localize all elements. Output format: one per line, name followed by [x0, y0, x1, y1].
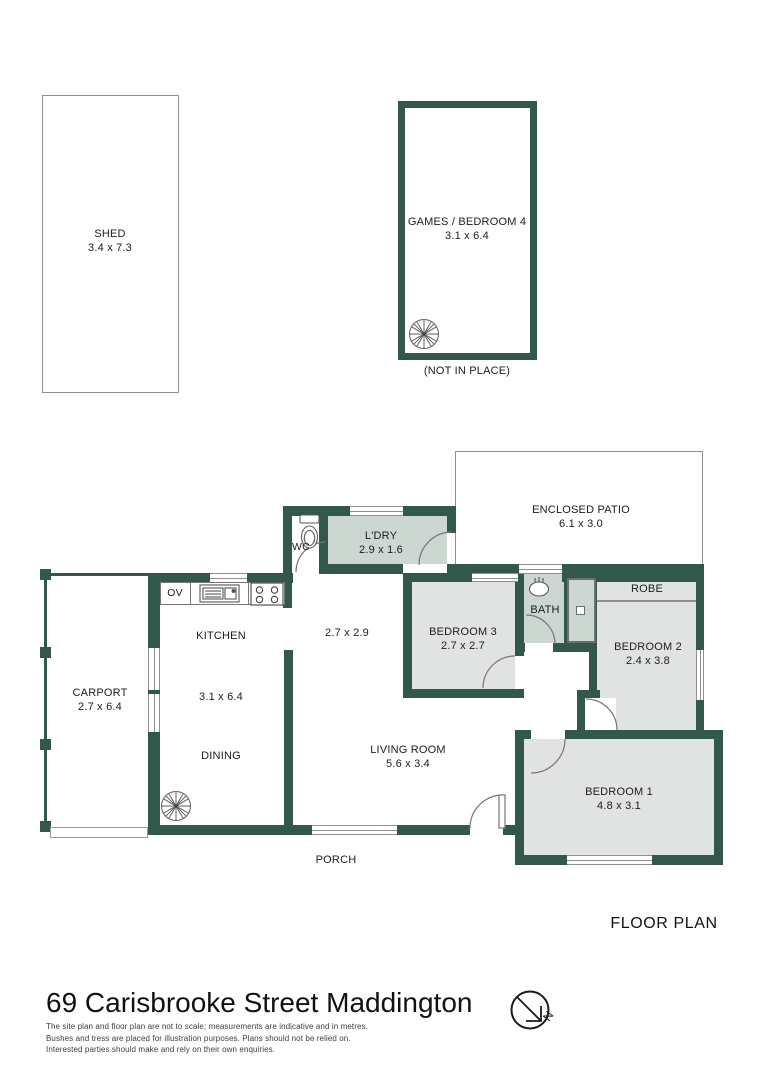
wc-label: WC [292, 541, 310, 553]
hall-dims: 2.7 x 2.9 [325, 627, 369, 640]
robe-label: ROBE [631, 583, 663, 596]
window [567, 855, 652, 865]
wall [515, 643, 525, 652]
ceiling-fan-icon [162, 792, 191, 821]
robe-divider [597, 600, 696, 602]
shed-label: SHED [94, 228, 125, 241]
wall [696, 573, 704, 650]
front-door-arc [470, 795, 503, 828]
laundry-label: L'DRY [365, 530, 397, 543]
wall [515, 730, 524, 865]
wall [44, 573, 47, 828]
floor-plan-title: FLOOR PLAN [610, 915, 717, 933]
bedroom2-door-swing-area [584, 698, 616, 730]
living-room-label: LIVING ROOM [370, 744, 446, 757]
compass-n-label: N [540, 1009, 556, 1024]
bedroom3-label: BEDROOM 3 [429, 626, 497, 639]
games-room-dims: 3.1 x 6.4 [445, 230, 489, 243]
bench-divider [190, 582, 191, 605]
bath-label: BATH [530, 604, 559, 617]
carport-post [40, 569, 51, 580]
patio-dims: 6.1 x 3.0 [559, 518, 603, 531]
games-room-note: (NOT IN PLACE) [424, 365, 510, 378]
wall [403, 573, 412, 698]
kitchen-label: KITCHEN [196, 630, 246, 643]
window [312, 825, 397, 835]
floor-plan-page: N SHED 3.4 x 7.3 GAMES / BEDROOM 4 3.1 x… [0, 0, 764, 1080]
bedroom1-label: BEDROOM 1 [585, 786, 653, 799]
wall [44, 573, 148, 576]
wall [283, 506, 350, 516]
games-room-label: GAMES / BEDROOM 4 [408, 216, 526, 229]
carport-label: CARPORT [73, 687, 128, 700]
window [696, 650, 704, 700]
bedroom1-dims: 4.8 x 3.1 [597, 800, 641, 813]
dining-label: DINING [201, 750, 241, 763]
bedroom3-dims: 2.7 x 2.7 [441, 640, 485, 653]
carport-post [40, 739, 51, 750]
shower-tap [576, 606, 585, 615]
disclaimer-line: The site plan and floor plan are not to … [46, 1022, 368, 1031]
wall [447, 506, 456, 533]
window [519, 564, 562, 574]
window [148, 694, 160, 732]
carport-post [40, 647, 51, 658]
disclaimer-line: Bushes and tress are placed for illustra… [46, 1034, 351, 1043]
wall [319, 564, 403, 574]
front-door-leaf [499, 795, 505, 828]
wall [403, 573, 472, 582]
kitchen-dims: 3.1 x 6.4 [199, 691, 243, 704]
property-address: 69 Carisbrooke Street Maddington [46, 987, 472, 1019]
window [350, 506, 403, 516]
wall [148, 732, 160, 835]
laundry-dims: 2.9 x 1.6 [359, 544, 403, 557]
shed-dims: 3.4 x 7.3 [88, 242, 132, 255]
wall [565, 730, 723, 739]
carport-dims: 2.7 x 6.4 [78, 701, 122, 714]
window [472, 573, 518, 582]
porch-label: PORCH [316, 854, 357, 867]
wall [397, 825, 470, 835]
wall [403, 689, 524, 698]
patio-label: ENCLOSED PATIO [532, 504, 630, 517]
bedroom2-dims: 2.4 x 3.8 [626, 655, 670, 668]
north-arrow-icon: N [512, 992, 557, 1029]
wall [284, 650, 293, 825]
disclaimer-line: Interested parties should make and rely … [46, 1045, 275, 1054]
wall [652, 855, 723, 865]
wall [714, 730, 723, 865]
carport-threshold [50, 827, 148, 838]
bench-divider [248, 582, 249, 605]
wall [148, 825, 312, 835]
wall [148, 573, 160, 648]
wall [515, 855, 567, 865]
bedroom2-label: BEDROOM 2 [614, 641, 682, 654]
window [148, 648, 160, 690]
living-room-dims: 5.6 x 3.4 [386, 758, 430, 771]
oven-label: OV [167, 587, 183, 599]
